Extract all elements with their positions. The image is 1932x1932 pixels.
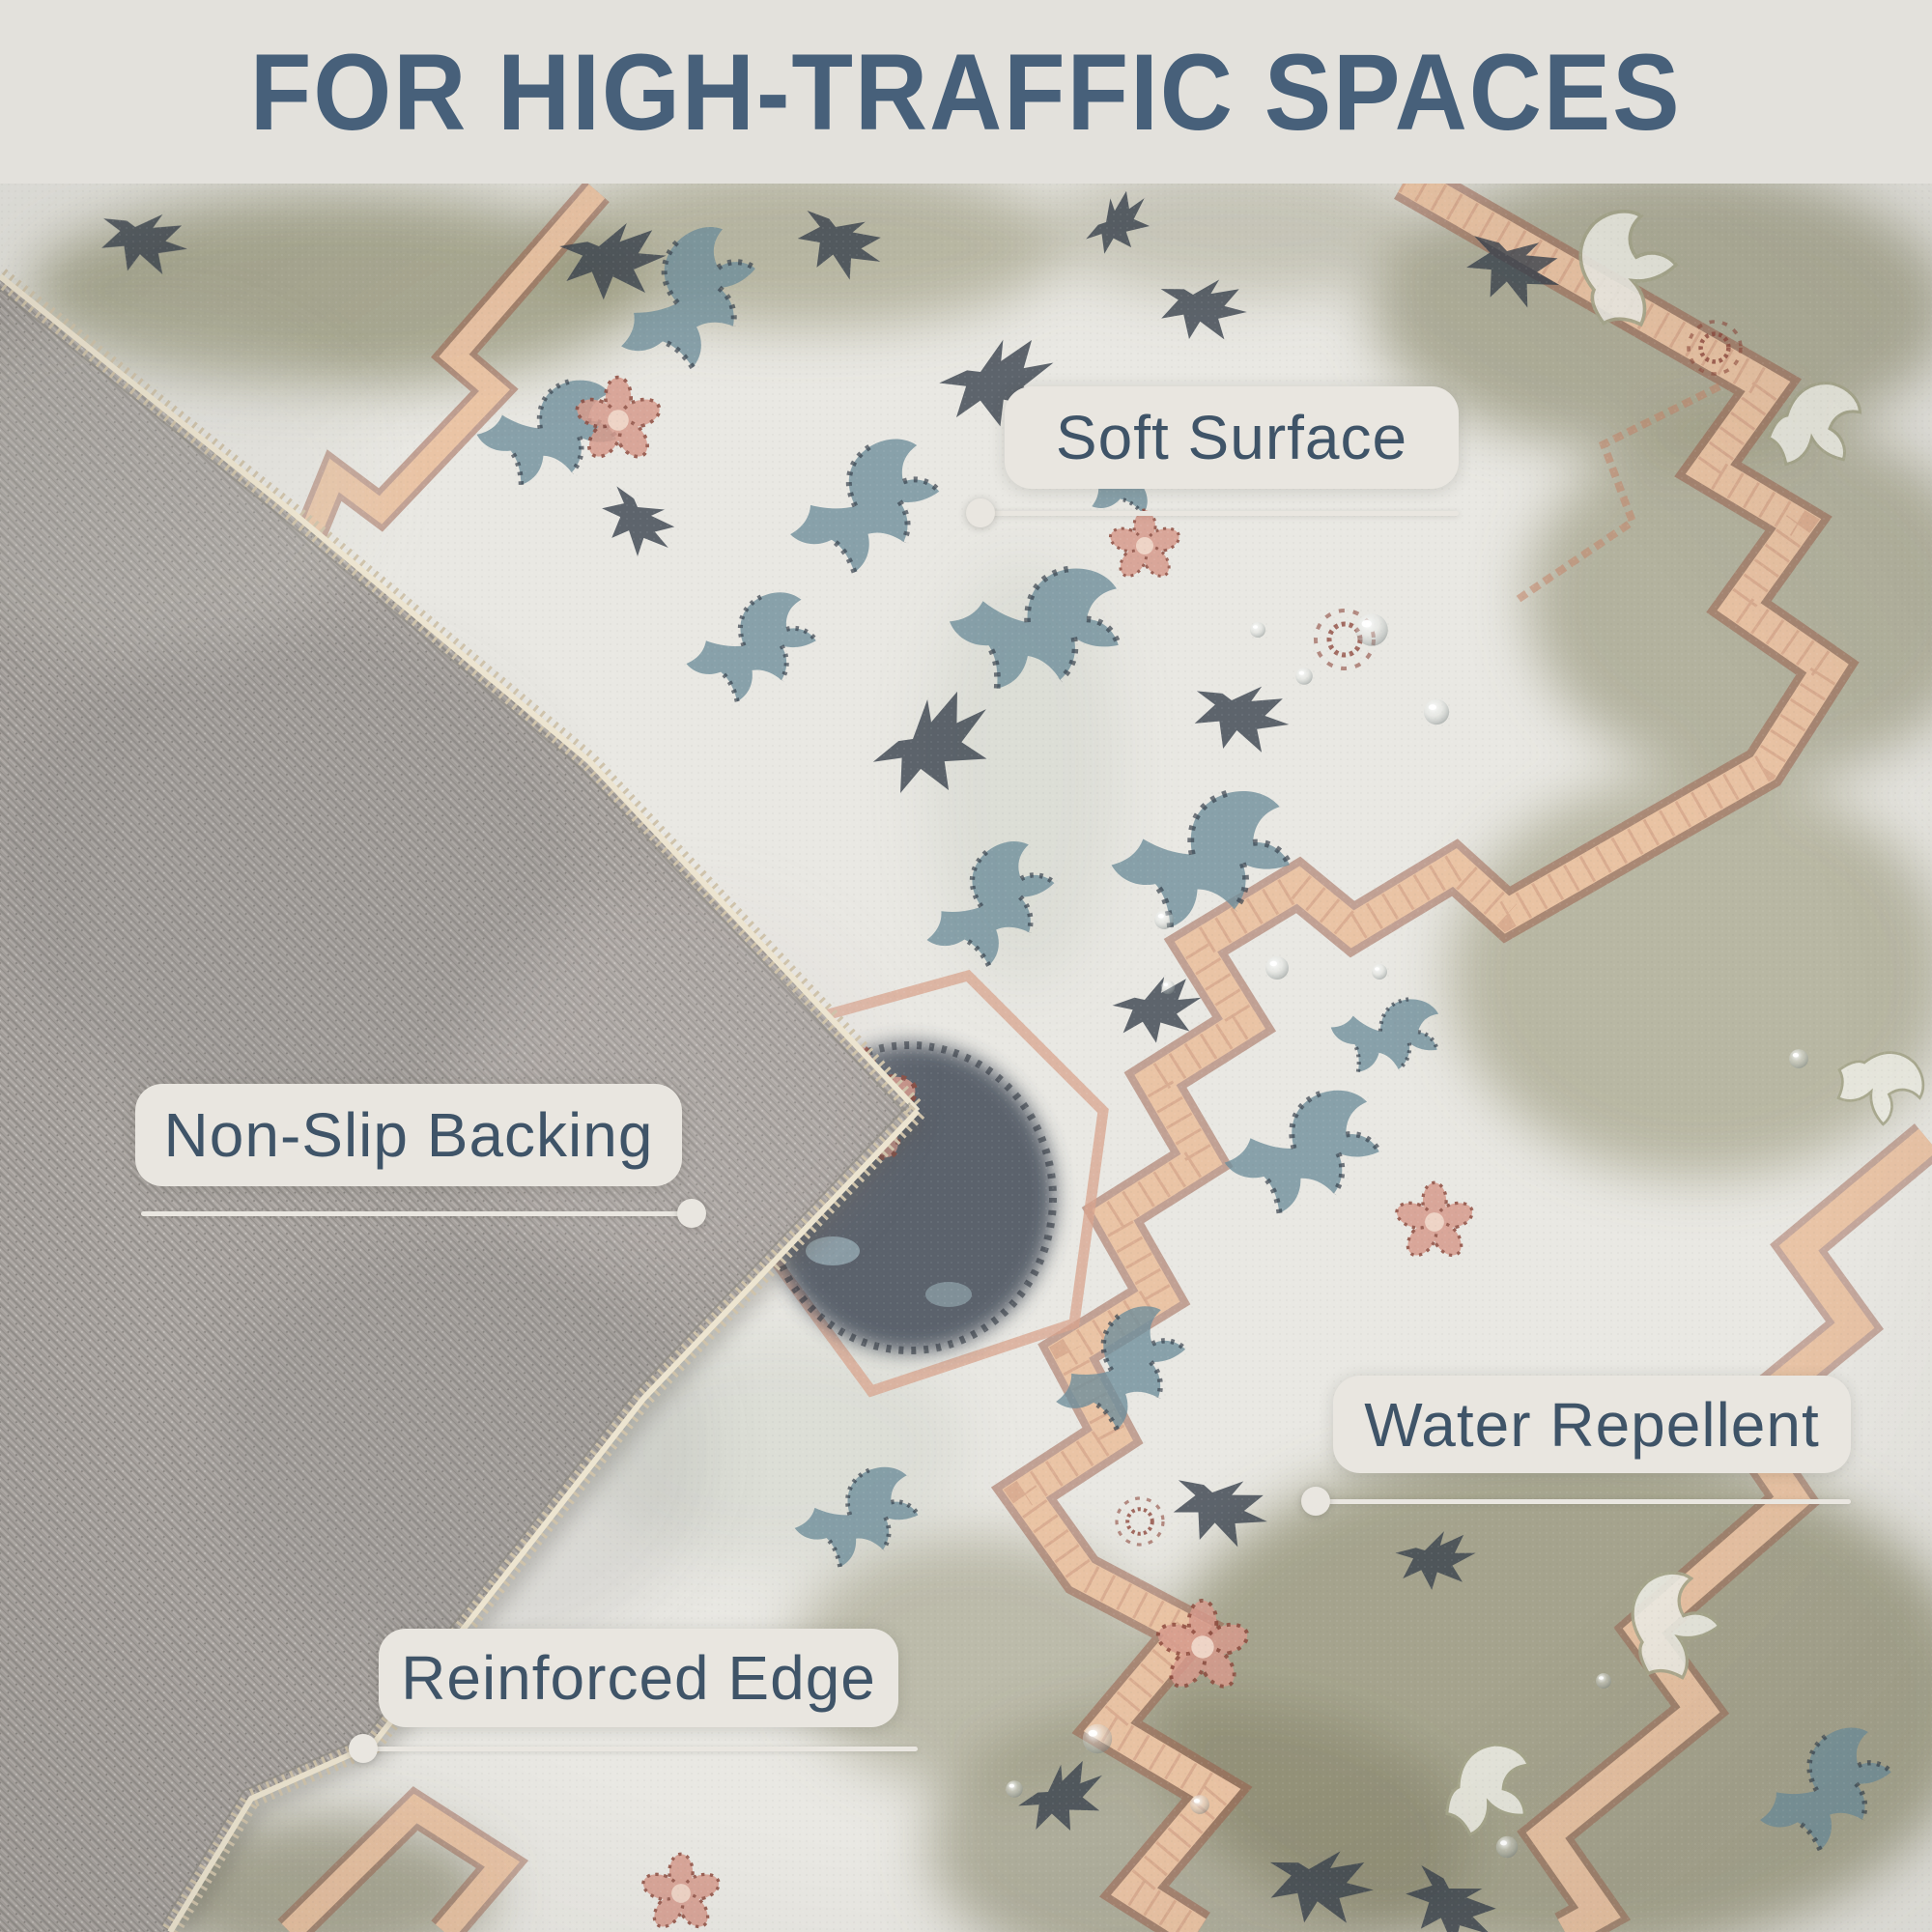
callout-non-slip-backing: Non-Slip Backing bbox=[135, 1084, 682, 1186]
callout-soft-surface-label: Soft Surface bbox=[1056, 402, 1407, 473]
photo-vignette bbox=[0, 184, 1932, 1932]
callout-reinforced-edge: Reinforced Edge bbox=[379, 1629, 898, 1727]
callout-non-slip-backing-label: Non-Slip Backing bbox=[164, 1099, 654, 1171]
callout-water-repellent: Water Repellent bbox=[1333, 1376, 1851, 1473]
leader-dot-reinforced-edge bbox=[349, 1734, 378, 1763]
leader-dot-water-repellent bbox=[1301, 1487, 1330, 1516]
callout-reinforced-edge-label: Reinforced Edge bbox=[401, 1642, 876, 1714]
leader-line-non-slip-backing bbox=[141, 1211, 692, 1216]
callout-soft-surface: Soft Surface bbox=[1005, 386, 1459, 489]
leader-line-soft-surface bbox=[981, 511, 1459, 516]
leader-line-reinforced-edge bbox=[363, 1747, 918, 1751]
leader-line-water-repellent bbox=[1316, 1499, 1851, 1504]
callout-water-repellent-label: Water Repellent bbox=[1364, 1389, 1820, 1461]
rug-photo bbox=[0, 0, 1932, 1932]
product-infographic: FOR HIGH-TRAFFIC SPACES Soft Surface Non… bbox=[0, 0, 1932, 1932]
leader-dot-soft-surface bbox=[966, 498, 995, 527]
leader-dot-non-slip-backing bbox=[677, 1199, 706, 1228]
header-banner: FOR HIGH-TRAFFIC SPACES bbox=[0, 0, 1932, 184]
page-title: FOR HIGH-TRAFFIC SPACES bbox=[250, 30, 1682, 155]
